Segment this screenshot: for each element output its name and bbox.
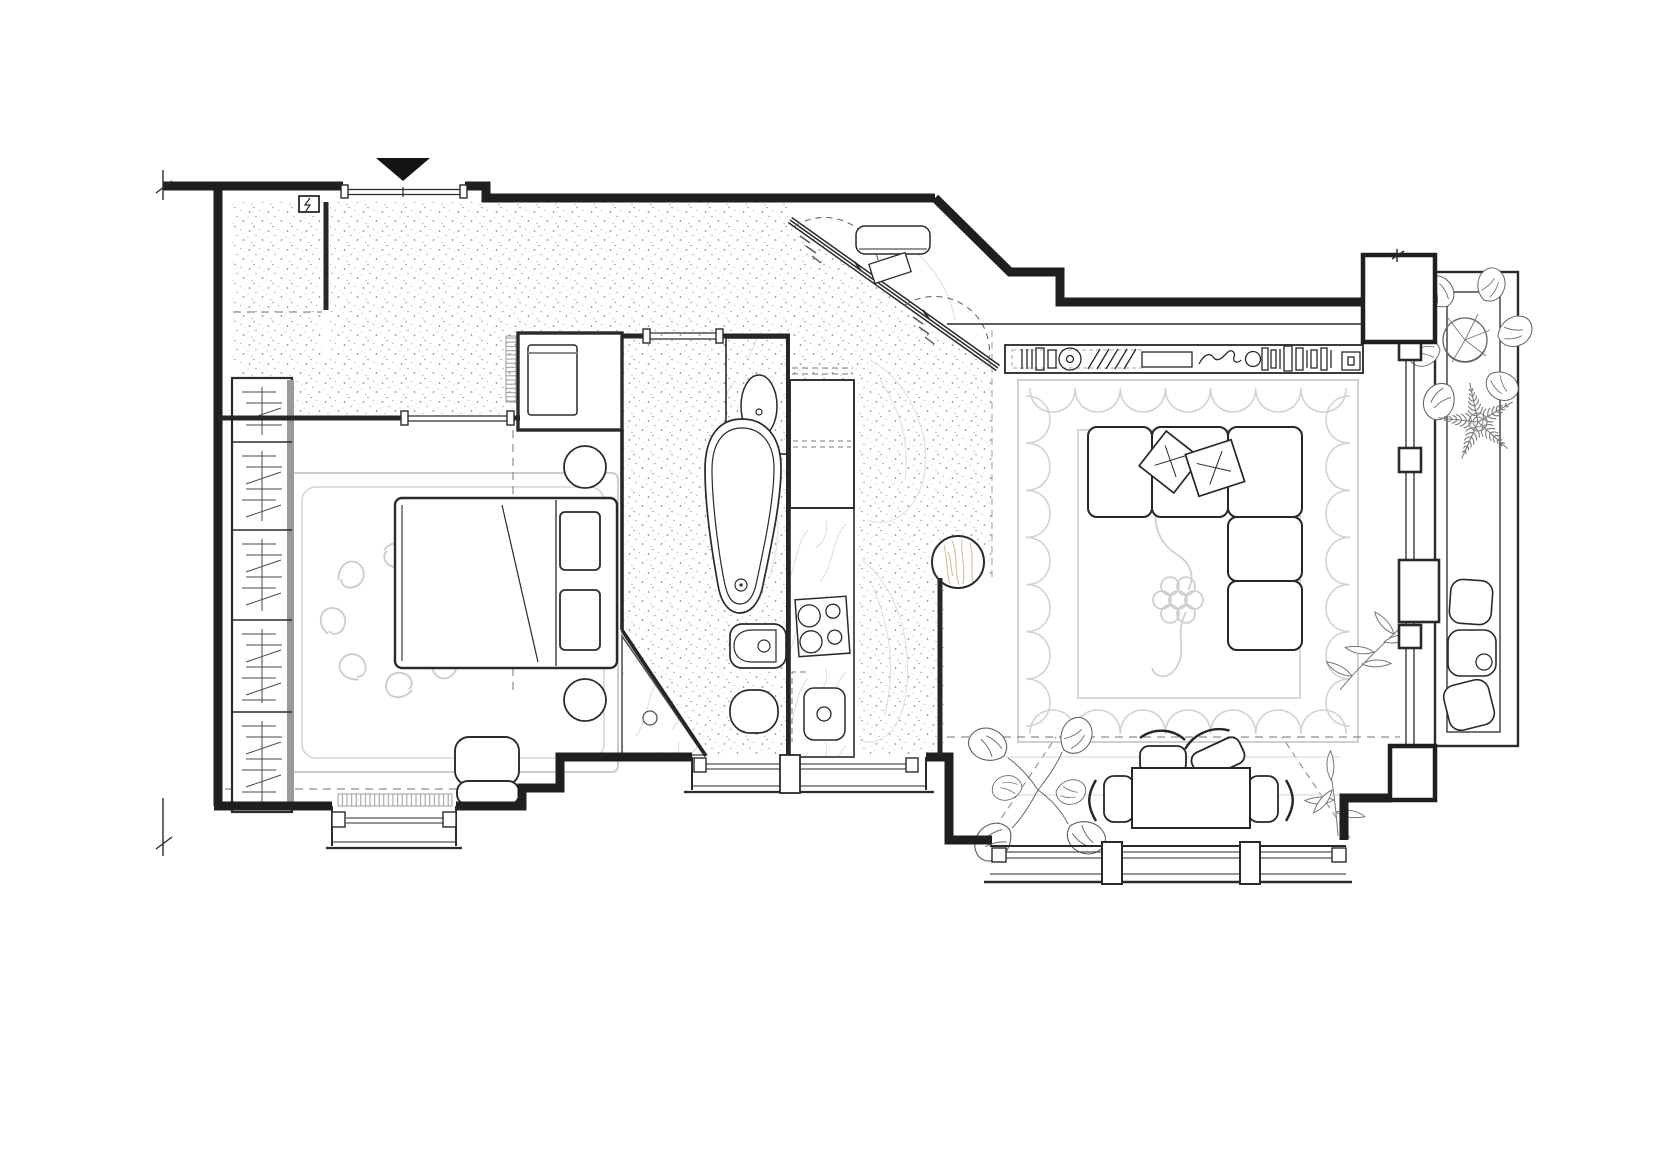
bidet [730, 624, 786, 668]
radiator [506, 336, 516, 402]
entrance [341, 158, 467, 198]
wardrobe-back-panel [287, 380, 294, 810]
chair-back [1286, 780, 1293, 821]
entry-stool [869, 253, 911, 284]
nightstand [564, 679, 606, 721]
entrance-marker-icon [376, 158, 430, 181]
entry-door-leaf [345, 187, 462, 197]
window-pillar [1240, 842, 1260, 884]
balcony-poufs [1441, 579, 1497, 733]
stove [795, 596, 850, 656]
window-pillar [780, 755, 800, 793]
dining-chair [1248, 776, 1278, 822]
radiator [338, 794, 452, 806]
pillow [560, 512, 600, 570]
dining-chair [1104, 776, 1134, 822]
toilet [730, 690, 778, 733]
nightstand [564, 446, 606, 488]
bedroom-window [326, 806, 462, 848]
bed [395, 498, 617, 668]
kitchen-window [684, 755, 934, 793]
bedroom [225, 378, 618, 812]
electrical-panel [299, 196, 319, 212]
chair-back [1140, 731, 1185, 740]
pillow [560, 590, 600, 650]
wall-block-balcony-top [1363, 255, 1435, 342]
tall-unit-fridge [790, 380, 854, 508]
window-pillar [1102, 842, 1122, 884]
shower-drain [643, 711, 657, 725]
living-window [984, 842, 1352, 884]
tv-console [1005, 345, 1363, 373]
washing-machine [528, 345, 577, 415]
chair-back [1089, 780, 1096, 821]
wall-pier [1399, 560, 1439, 622]
kitchen [790, 368, 854, 757]
entry-closet-floor [233, 202, 322, 360]
wardrobe [232, 378, 294, 812]
small-plant [1305, 751, 1365, 836]
floor-plan-canvas [0, 0, 1654, 1169]
laundry-closet [518, 333, 622, 430]
armchair [455, 737, 519, 805]
dining-table [1132, 768, 1250, 828]
wall-block-balcony-bottom [1390, 746, 1435, 800]
